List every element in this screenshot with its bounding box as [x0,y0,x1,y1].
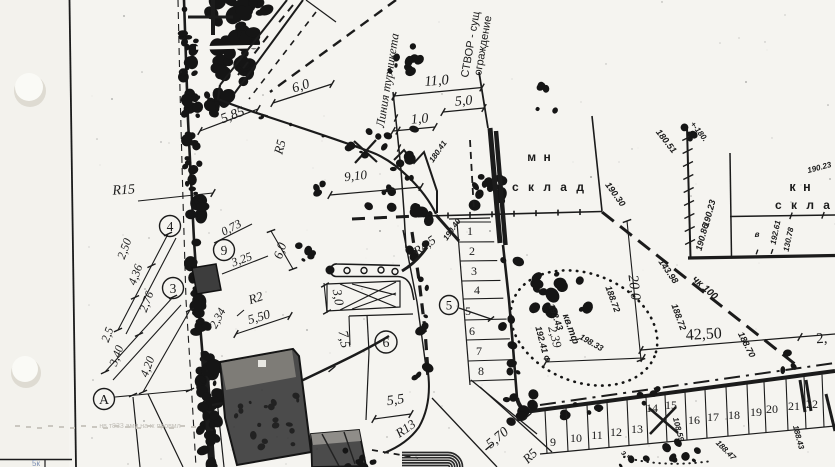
svg-text:9,10: 9,10 [343,167,368,184]
svg-text:12: 12 [610,425,622,439]
svg-text:1: 1 [467,224,473,238]
svg-text:в: в [755,230,760,239]
svg-text:7: 7 [476,344,482,358]
svg-text:9: 9 [221,243,228,258]
svg-text:9: 9 [550,435,556,449]
svg-text:5: 5 [446,298,453,313]
svg-text:6: 6 [469,324,475,338]
svg-text:11,0: 11,0 [424,72,450,90]
svg-text:5,0: 5,0 [454,93,473,109]
svg-text:5к: 5к [32,459,40,467]
svg-text:11: 11 [591,428,603,442]
svg-text:2: 2 [469,244,475,258]
svg-text:R15: R15 [111,182,136,199]
svg-text:17: 17 [707,410,719,424]
svg-text:42,50: 42,50 [685,325,722,344]
svg-text:3: 3 [471,264,477,278]
svg-text:15: 15 [665,398,677,412]
svg-text:4: 4 [474,283,480,297]
svg-text:8: 8 [478,364,484,378]
svg-text:с к л а д: с к л а д [775,198,835,212]
svg-text:18: 18 [728,408,740,422]
svg-text:5,5: 5,5 [386,392,405,409]
svg-text:10: 10 [570,431,582,445]
svg-text:А: А [99,393,110,408]
svg-text:к н: к н [789,180,812,194]
svg-text:19: 19 [750,405,762,419]
svg-text:3,0: 3,0 [329,287,347,307]
svg-text:2,: 2, [816,331,828,348]
svg-text:7,5: 7,5 [335,329,353,349]
svg-text:3: 3 [170,281,177,296]
svg-text:16: 16 [688,413,700,427]
svg-text:4: 4 [167,219,174,234]
svg-text:с к л а д: с к л а д [512,180,587,194]
svg-text:м н: м н [527,150,552,164]
svg-text:20: 20 [766,402,778,416]
svg-text:1,0: 1,0 [410,111,429,127]
svg-text:20,0: 20,0 [624,274,643,302]
svg-text:13: 13 [631,422,643,436]
svg-text:21: 21 [788,399,800,413]
